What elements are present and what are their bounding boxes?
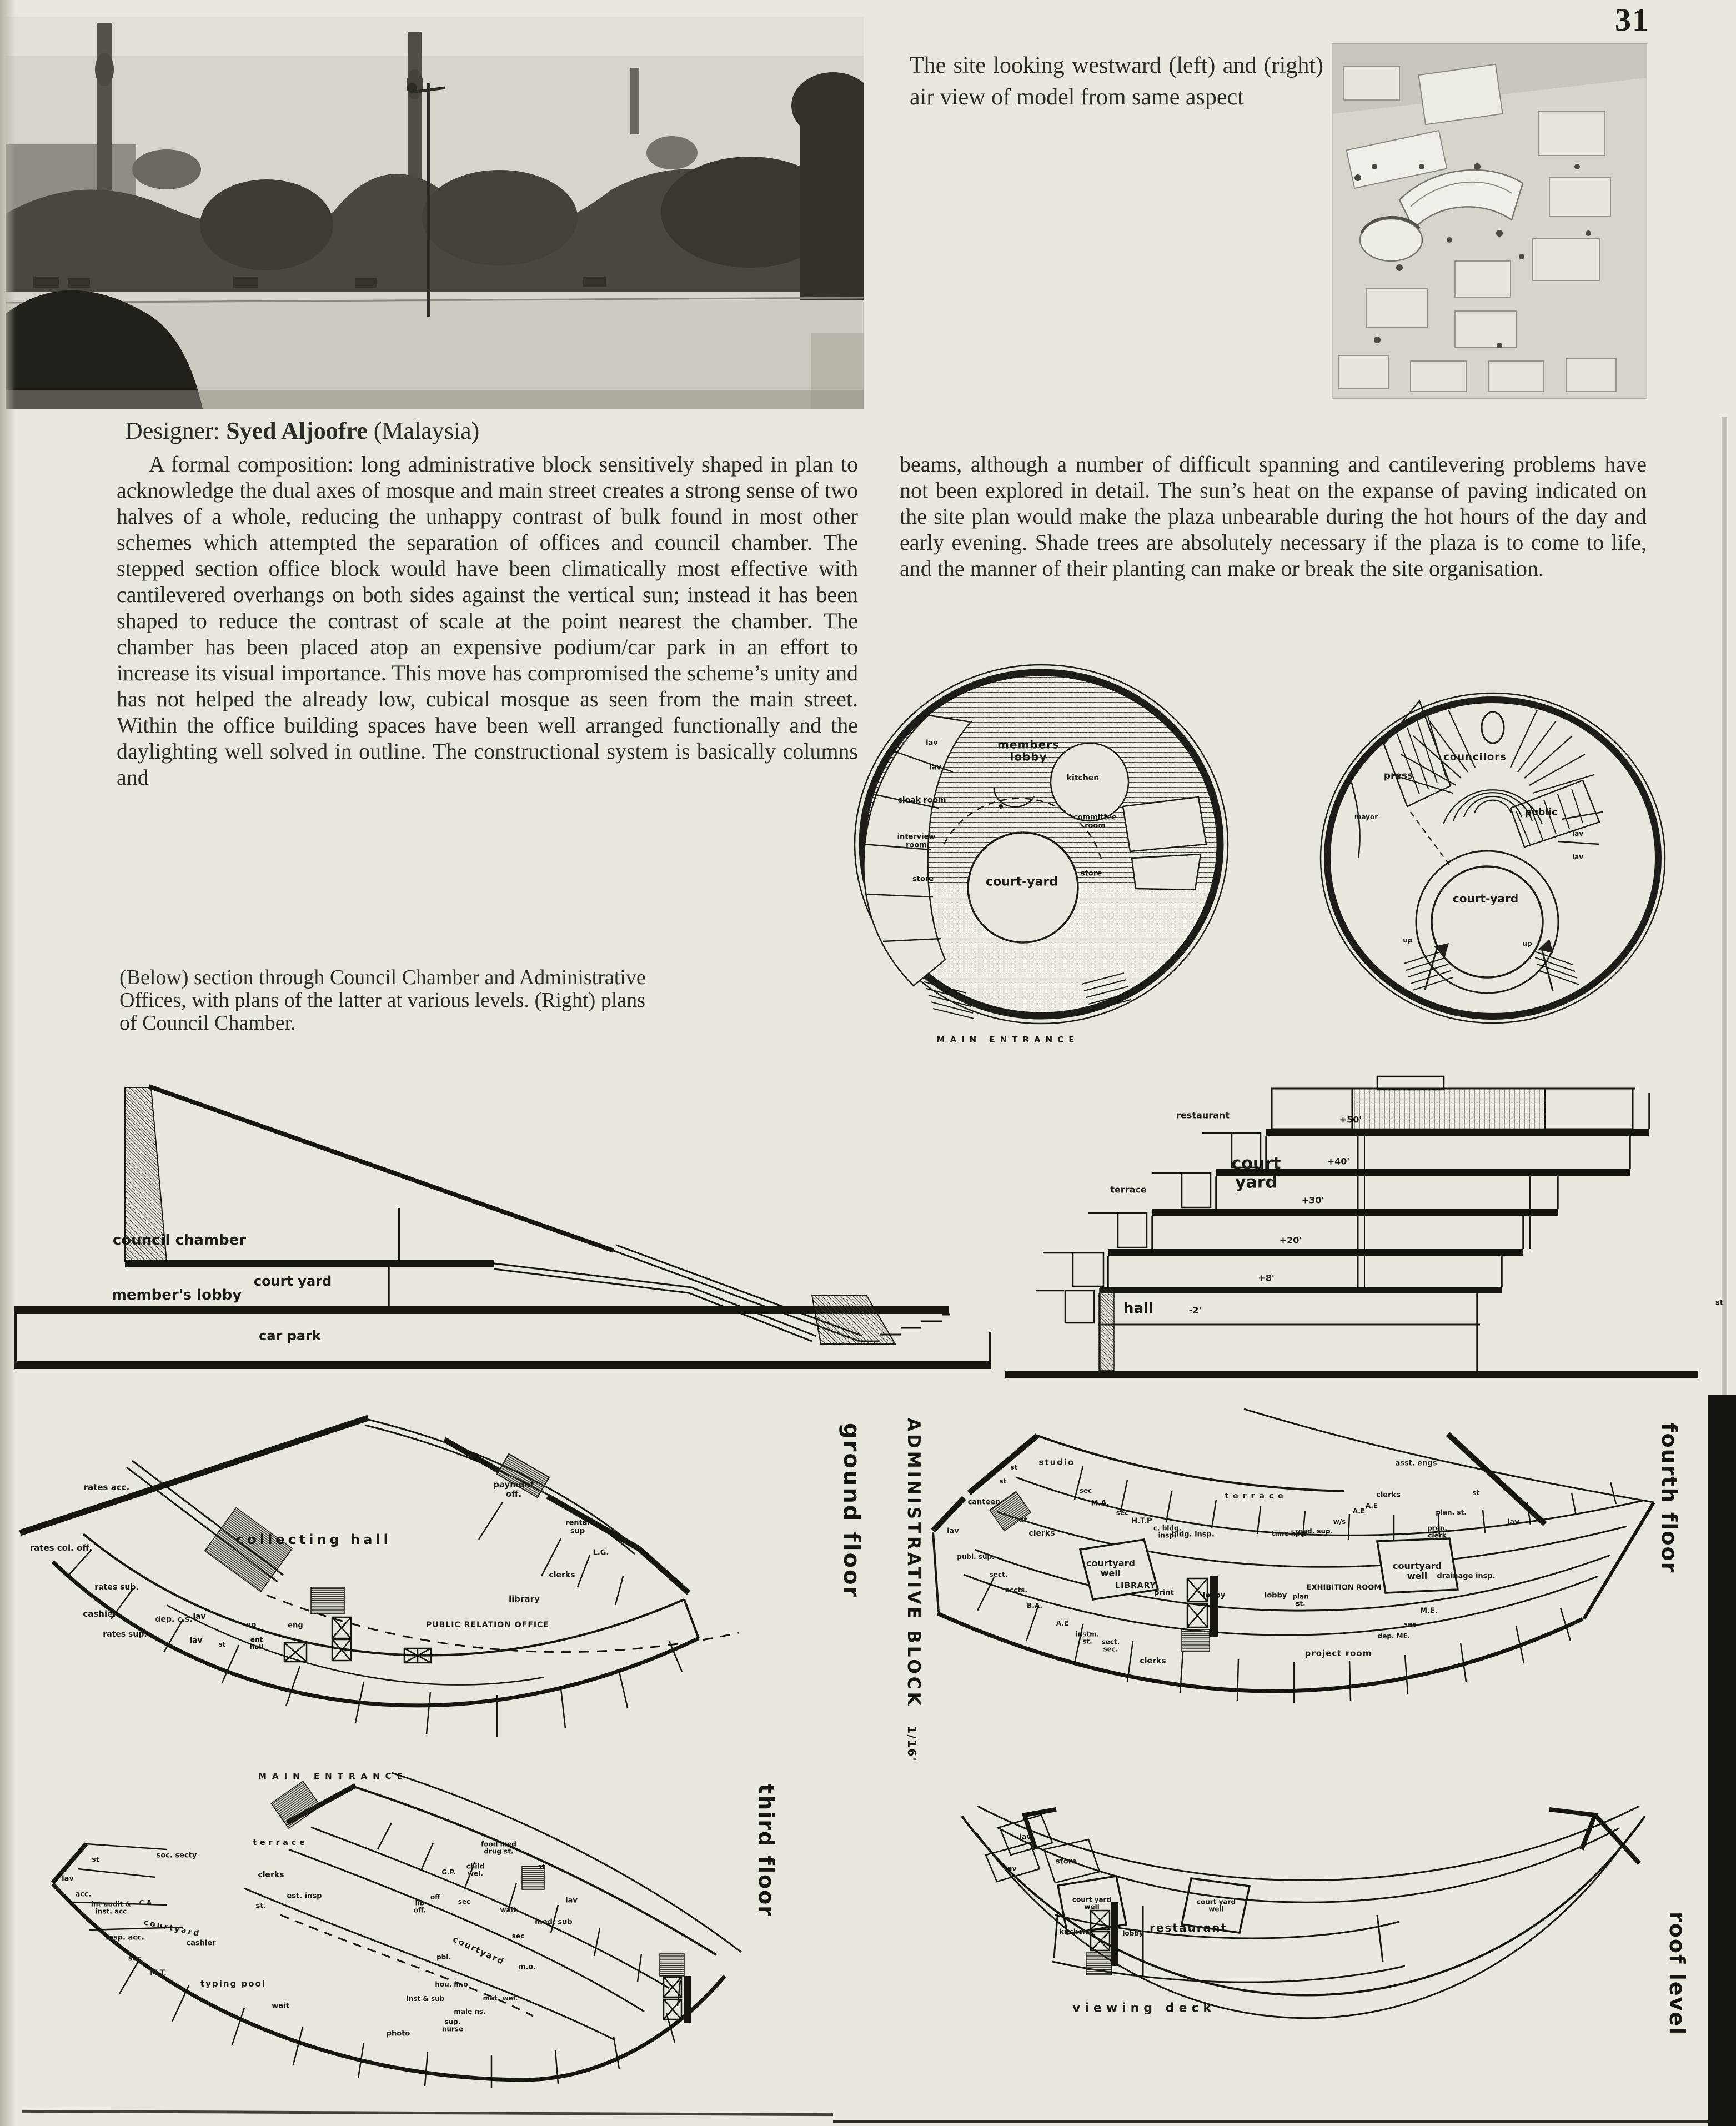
elevation-label: +50': [1339, 1115, 1362, 1125]
room-label: terrace: [253, 1838, 308, 1847]
room-label: inst & sub: [407, 1995, 445, 2003]
room-label: L.G.: [593, 1549, 609, 1557]
room-label: rates col. off.: [30, 1543, 92, 1553]
room-label: store: [1056, 1858, 1077, 1866]
room-label: terrace: [1225, 1492, 1287, 1501]
room-label: collecting hall: [236, 1532, 392, 1547]
room-label: sec: [458, 1898, 470, 1906]
room-label: lav: [189, 1636, 202, 1645]
section-label: court yard: [254, 1273, 332, 1289]
room-label: st.: [256, 1902, 267, 1911]
room-label: lib off.: [409, 1900, 431, 1915]
elevation-label: +40': [1327, 1156, 1350, 1167]
admin-block-scale: 1/16': [905, 1726, 919, 1762]
third-floor-drawing: [53, 1773, 741, 2088]
elevation-label: +30': [1302, 1195, 1324, 1206]
room-label: M.A.: [1091, 1500, 1109, 1508]
room-label: rental sup: [558, 1519, 597, 1535]
room-label: bldg. insp.: [1171, 1531, 1215, 1539]
room-label: court yard well: [1194, 1899, 1238, 1914]
room-label: dep. ME.: [1378, 1632, 1411, 1640]
room-label: committee room: [1070, 814, 1120, 830]
section-label: court yard: [1223, 1154, 1290, 1191]
room-label: st: [1020, 1516, 1027, 1524]
room-label: male ns.: [454, 2008, 485, 2015]
room-label: plan. st.: [1436, 1508, 1467, 1516]
room-label: G.P.: [441, 1868, 456, 1876]
fourth-floor-drawing: [933, 1409, 1654, 1703]
room-label: int audit & inst. acc: [86, 1901, 136, 1916]
third-floor-title: third floor: [754, 1784, 779, 1917]
room-label: rates acc.: [84, 1482, 130, 1492]
elevation-label: +8': [1258, 1273, 1274, 1283]
room-label: st: [538, 1863, 545, 1871]
room-label: courtyard well: [1083, 1558, 1138, 1578]
drawings-layer: [0, 0, 1736, 2126]
room-label: up: [1522, 940, 1532, 947]
room-label: time kprs: [1272, 1530, 1307, 1537]
section-label: terrace: [1110, 1185, 1146, 1195]
room-label: LIBRARY: [1115, 1581, 1156, 1590]
room-label: child wel.: [460, 1863, 491, 1878]
room-label: wait: [500, 1906, 516, 1914]
room-label: A.E: [1366, 1502, 1378, 1510]
room-label: dep. c.s.: [155, 1615, 193, 1624]
room-label: mayor: [1354, 813, 1378, 821]
room-label: photo: [387, 2030, 410, 2038]
room-label: EXHIBITION ROOM: [1307, 1584, 1382, 1592]
room-label: viewing deck: [1072, 2002, 1216, 2015]
room-label: acc.: [75, 1891, 91, 1899]
room-label: w/s: [1333, 1518, 1346, 1526]
room-label: courtyard well: [1387, 1561, 1448, 1581]
room-label: st: [92, 1856, 99, 1863]
room-label: store: [912, 875, 934, 884]
room-label: C.A: [139, 1899, 152, 1907]
room-label: lav: [929, 764, 941, 772]
room-label: m.o.: [518, 1963, 536, 1972]
section-label: car park: [259, 1328, 321, 1343]
room-label: store: [1081, 870, 1102, 878]
room-label: M.T.: [150, 1969, 167, 1978]
room-label: st: [1011, 1463, 1018, 1471]
room-label: restaurant: [1150, 1921, 1227, 1934]
main-entrance-caption: MAIN ENTRANCE: [937, 1035, 1080, 1045]
room-label: lav: [926, 739, 938, 748]
room-label: sec: [1404, 1621, 1416, 1628]
room-label: sup. nurse: [439, 2019, 466, 2034]
scan-edge-line-2: [833, 2120, 1710, 2123]
room-label: public: [1525, 807, 1557, 818]
room-label: sec: [1116, 1509, 1128, 1517]
room-label: canteen: [968, 1498, 1001, 1507]
room-label: med. sub: [535, 1918, 572, 1927]
room-label: interview room: [894, 833, 939, 849]
model-photo: [1332, 43, 1647, 399]
room-label: hou. m.o: [435, 1980, 468, 1988]
room-label: st: [219, 1641, 226, 1648]
room-label: cloak room: [897, 796, 946, 805]
section-label: hall: [1123, 1300, 1153, 1317]
room-label: H.T.P: [1131, 1517, 1152, 1526]
room-label: ent hall: [243, 1637, 270, 1652]
room-label: plan st.: [1288, 1593, 1313, 1608]
room-label: lav: [62, 1875, 74, 1883]
roof-level-drawing: [962, 1806, 1645, 2018]
room-label: sect. sec.: [1097, 1639, 1125, 1654]
section-label: council chamber: [113, 1232, 246, 1248]
room-label: accts.: [1005, 1586, 1027, 1594]
room-label: clerks: [258, 1871, 284, 1879]
room-label: sec: [128, 1955, 142, 1963]
room-label: M.E.: [1420, 1607, 1438, 1616]
page-edge-strip: [1708, 1395, 1736, 2126]
room-label: studio: [1039, 1457, 1075, 1467]
room-label: sec: [1080, 1487, 1092, 1495]
room-label: sect.: [990, 1571, 1008, 1578]
room-label: project room: [1305, 1648, 1372, 1658]
room-label: eng: [288, 1622, 303, 1630]
room-label: print: [1154, 1589, 1174, 1597]
room-label: lav: [1507, 1518, 1519, 1527]
room-label: lav: [193, 1612, 205, 1621]
fourth-floor-title: fourth floor: [1657, 1423, 1682, 1573]
room-label: prep. clerk: [1423, 1525, 1451, 1540]
room-label: clerks: [1140, 1657, 1166, 1666]
ground-floor-title: ground floor: [839, 1423, 864, 1599]
room-label: rates sub.: [94, 1583, 138, 1592]
gutter-shadow: [0, 0, 16, 2126]
room-label: st: [1473, 1489, 1480, 1497]
room-label: asst. engs: [1395, 1460, 1437, 1468]
roof-level-title: roof level: [1665, 1912, 1689, 2035]
room-label: court yard well: [1070, 1897, 1114, 1912]
ground-floor-drawing: [20, 1418, 739, 1737]
room-label: B.A.: [1027, 1602, 1042, 1609]
room-label: cashier: [83, 1609, 117, 1619]
room-label: lav: [947, 1527, 959, 1536]
room-label: sec: [512, 1932, 524, 1940]
room-label: A.E: [1056, 1619, 1068, 1627]
room-label: PUBLIC RELATION OFFICE: [426, 1621, 549, 1629]
room-label: lav: [1019, 1833, 1031, 1842]
room-label: press: [1384, 770, 1413, 781]
room-label: off: [430, 1893, 440, 1901]
room-label: est. insp: [287, 1892, 322, 1901]
room-label: members lobby: [990, 739, 1067, 764]
room-label: cashier: [186, 1939, 215, 1948]
room-label: insp. acc.: [106, 1934, 144, 1942]
room-label: lav: [1572, 853, 1583, 861]
elevation-label: -2': [1189, 1305, 1202, 1316]
page-number: 31: [1615, 1, 1649, 38]
room-label: lobby: [1122, 1929, 1143, 1937]
room-label: up: [1403, 936, 1412, 944]
room-label: councilors: [1443, 751, 1507, 763]
section-label: member's lobby: [112, 1287, 242, 1303]
room-label: kitchen: [1060, 1928, 1087, 1936]
room-label: publ. sup.: [957, 1553, 994, 1561]
room-label: food med drug st.: [476, 1841, 521, 1856]
room-label: pbl.: [436, 1953, 451, 1961]
room-label: clerks: [1376, 1491, 1401, 1500]
street-photo: [6, 17, 875, 409]
room-label: lav: [1005, 1865, 1017, 1873]
page-edge-line: [1722, 417, 1727, 1395]
council-plan-right-drawing: [1321, 693, 1665, 1023]
room-label: A.E: [1353, 1507, 1365, 1515]
section-label: restaurant: [1176, 1110, 1230, 1121]
room-label: mat. wel.: [483, 1994, 518, 2002]
room-label: up: [246, 1621, 257, 1629]
elevation-label: +20': [1280, 1235, 1302, 1246]
room-label: court-yard: [1453, 892, 1518, 905]
room-label: payment off.: [489, 1480, 539, 1499]
room-label: kitchen: [1067, 774, 1100, 783]
main-entrance-caption: MAIN ENTRANCE: [258, 1771, 408, 1781]
room-label: st: [1000, 1477, 1007, 1485]
room-label: typing pool: [200, 1979, 266, 1989]
room-label: lav: [565, 1897, 578, 1905]
room-label: rates sup.: [103, 1630, 147, 1639]
room-label: soc. secty: [157, 1852, 197, 1860]
room-label: lav: [1572, 830, 1583, 838]
room-label: court-yard: [986, 875, 1058, 889]
room-label: wait: [272, 2002, 289, 2010]
room-label: clerks: [549, 1571, 575, 1580]
room-label: library: [509, 1594, 540, 1604]
admin-block-title: ADMINISTRATIVE BLOCK 1/16': [904, 1418, 924, 1762]
magazine-page: 31 The site looking westward (left) and …: [0, 0, 1736, 2126]
room-label: clerks: [1028, 1529, 1055, 1538]
room-label: lobby: [1203, 1592, 1225, 1600]
admin-block-name: ADMINISTRATIVE BLOCK: [904, 1418, 924, 1708]
room-label: lobby: [1265, 1592, 1287, 1600]
